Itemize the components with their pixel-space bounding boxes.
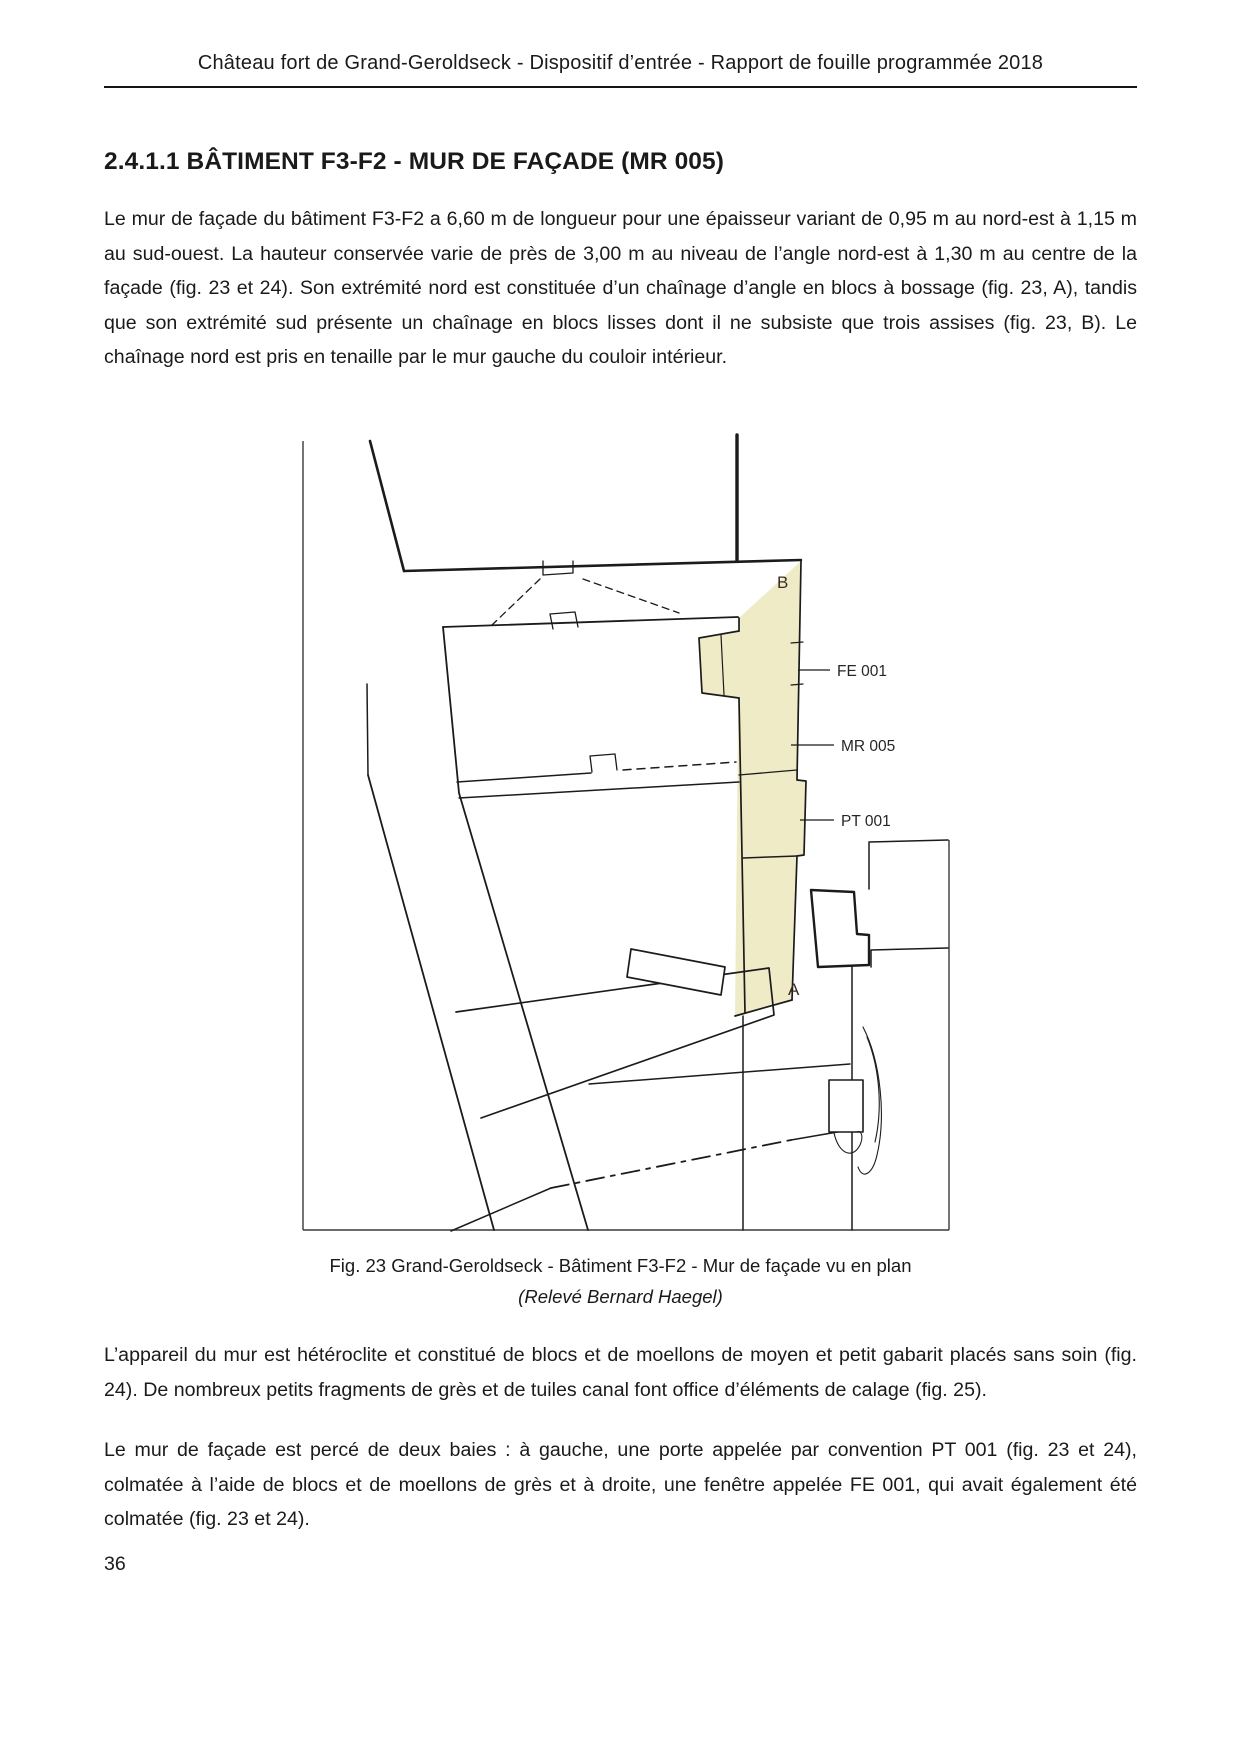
figure-caption: Fig. 23 Grand-Geroldseck - Bâtiment F3-F… [104, 1250, 1137, 1281]
paragraph-appareil: L’appareil du mur est hétéroclite et con… [104, 1338, 1137, 1407]
paragraph-facade-description: Le mur de façade du bâtiment F3-F2 a 6,6… [104, 202, 1137, 375]
plan-drawing-svg: B A FE 001 MR 005 PT 001 [291, 387, 951, 1232]
figure-credit: (Relevé Bernard Haegel) [104, 1281, 1137, 1312]
label-chainage-b: B [777, 573, 788, 592]
label-pt001: PT 001 [841, 813, 891, 830]
label-chainage-a: A [788, 980, 800, 999]
plan-walls [367, 435, 948, 1231]
document-page: Château fort de Grand-Geroldseck - Dispo… [0, 0, 1241, 1755]
section-heading: 2.4.1.1 BÂTIMENT F3-F2 - MUR DE FAÇADE (… [104, 148, 1137, 176]
page-number: 36 [104, 1553, 1137, 1576]
paragraph-baies: Le mur de façade est percé de deux baies… [104, 1433, 1137, 1537]
label-fe001: FE 001 [837, 663, 887, 680]
label-mr005: MR 005 [841, 738, 895, 755]
running-header: Château fort de Grand-Geroldseck - Dispo… [104, 52, 1137, 88]
highlighted-wall-area [699, 561, 806, 1016]
figure-plan: B A FE 001 MR 005 PT 001 [291, 387, 951, 1232]
